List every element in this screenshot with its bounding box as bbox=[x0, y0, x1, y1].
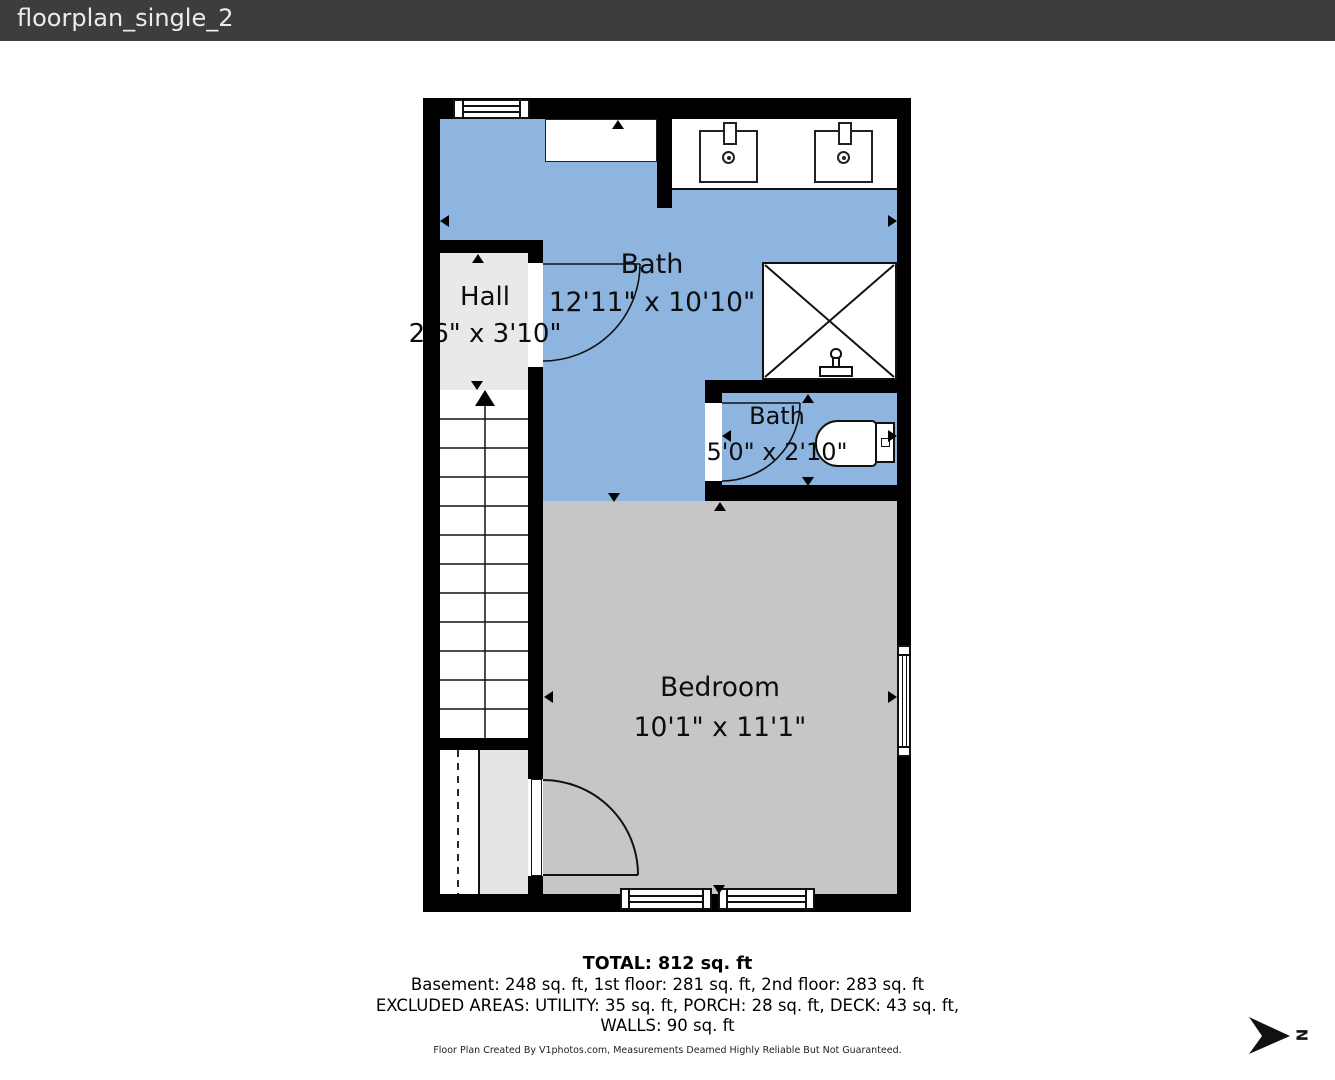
area-summary: TOTAL: 812 sq. ft Basement: 248 sq. ft, … bbox=[0, 954, 1335, 1037]
title-bar: floorplan_single_2 bbox=[0, 0, 1335, 41]
total-area: TOTAL: 812 sq. ft bbox=[0, 954, 1335, 975]
compass-north-label: N bbox=[1292, 1029, 1310, 1042]
hall-arrow-up-icon bbox=[472, 254, 484, 263]
window-title: floorplan_single_2 bbox=[17, 4, 234, 32]
smallbath-arrow-right-icon bbox=[888, 430, 897, 442]
floorplan: Hall 2'6" x 3'10" Bath 12'11" x 10'10" bbox=[423, 98, 911, 912]
bedroom-arrow-right-icon bbox=[888, 691, 897, 703]
window-right bbox=[897, 645, 911, 757]
smallbath-dims: 5'0" x 2'10" bbox=[706, 438, 847, 466]
bedroom-arrow-up-icon bbox=[714, 502, 726, 511]
bedroom-arrow-left-icon bbox=[544, 691, 553, 703]
floor-areas: Basement: 248 sq. ft, 1st floor: 281 sq.… bbox=[0, 975, 1335, 996]
window-bottom-right bbox=[718, 888, 815, 910]
hall-arrow-down-icon bbox=[471, 381, 483, 390]
walls-area: WALLS: 90 sq. ft bbox=[0, 1016, 1335, 1037]
disclaimer: Floor Plan Created By V1photos.com, Meas… bbox=[0, 1045, 1335, 1056]
plan-linework bbox=[423, 98, 911, 912]
bedroom-dims: 10'1" x 11'1" bbox=[634, 712, 807, 743]
smallbath-arrow-down-icon bbox=[802, 477, 814, 486]
bath-arrow-up-icon bbox=[612, 120, 624, 129]
bath-arrow-left-icon bbox=[440, 215, 449, 227]
window-bottom-left bbox=[620, 888, 712, 910]
smallbath-label: Bath bbox=[749, 402, 805, 430]
excluded-areas: EXCLUDED AREAS: UTILITY: 35 sq. ft, PORC… bbox=[0, 996, 1335, 1017]
stairs-up-arrow-icon bbox=[475, 390, 495, 406]
floorplan-viewer: floorplan_single_2 Hall 2'6" bbox=[0, 0, 1335, 1080]
bedroom-arrow-down-icon bbox=[713, 885, 725, 894]
bedroom-label: Bedroom bbox=[660, 672, 780, 703]
window-top bbox=[453, 99, 530, 119]
bath-arrow-right-icon bbox=[888, 215, 897, 227]
bath-arrow-down-icon bbox=[608, 493, 620, 502]
